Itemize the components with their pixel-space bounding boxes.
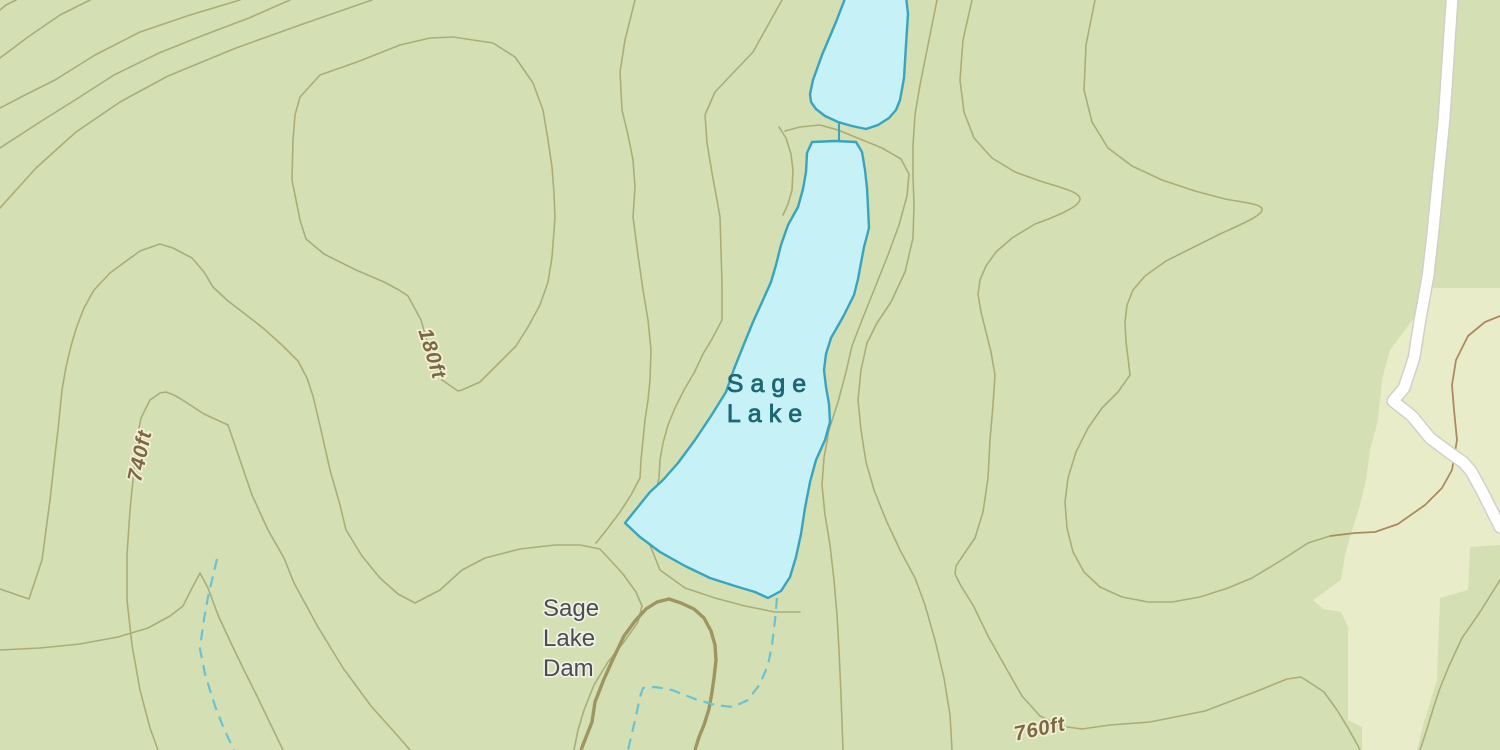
svg-text:Lake: Lake (543, 625, 595, 652)
svg-text:Sage: Sage (543, 595, 599, 622)
svg-text:Sage: Sage (727, 370, 813, 398)
svg-text:Dam: Dam (543, 655, 594, 682)
svg-text:Lake: Lake (727, 400, 809, 428)
